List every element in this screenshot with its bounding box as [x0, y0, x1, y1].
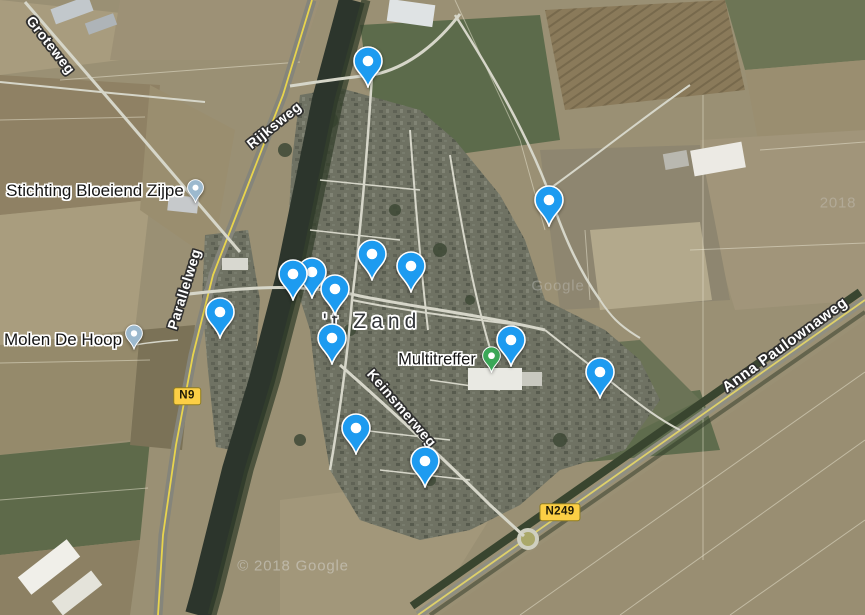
poi-label-molen-de-hoop[interactable]: Molen De Hoop [4, 330, 122, 350]
satellite-imagery [0, 0, 865, 615]
year-watermark: 2018 [820, 195, 857, 212]
poi-label-multitreffer[interactable]: Multitreffer [398, 351, 476, 370]
route-badge-n9: N9 [173, 387, 201, 405]
satellite-map[interactable]: © 2018 Google Google 2018 Groteweg Rijks… [0, 0, 865, 615]
google-watermark: Google [531, 278, 584, 295]
route-badge-n249: N249 [539, 503, 580, 521]
copyright-watermark: © 2018 Google [237, 558, 349, 575]
town-label-t-zand: 't Zand [323, 310, 422, 334]
poi-label-stichting-bloeiend-zijpe[interactable]: Stichting Bloeiend Zijpe [6, 181, 184, 201]
